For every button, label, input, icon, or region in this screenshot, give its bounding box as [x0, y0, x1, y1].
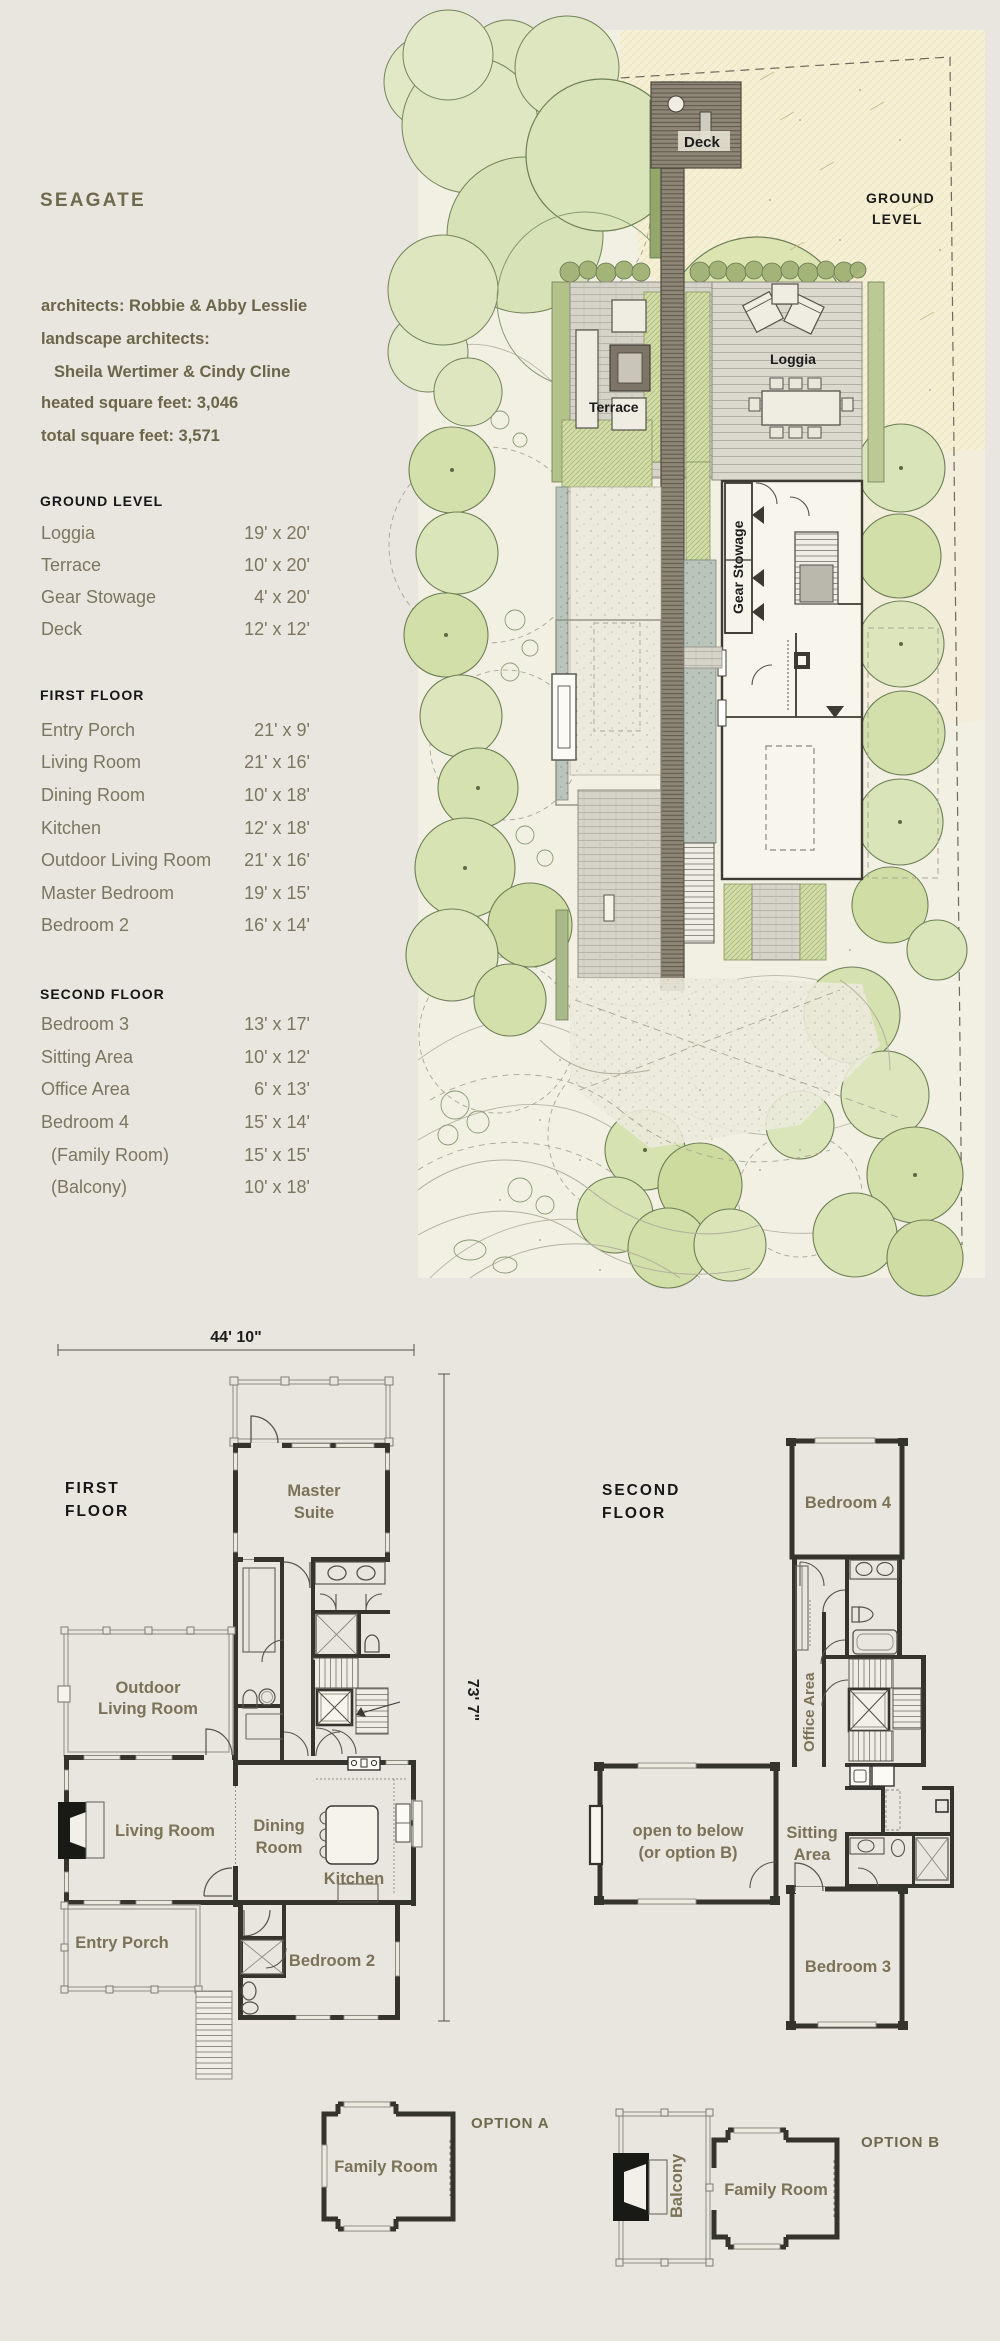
svg-text:Terrace: Terrace	[41, 555, 101, 575]
svg-text:Family Room: Family Room	[334, 2158, 438, 2176]
svg-text:Room: Room	[256, 1839, 303, 1857]
svg-text:GROUND: GROUND	[866, 190, 935, 206]
svg-text:Entry Porch: Entry Porch	[75, 1934, 169, 1952]
svg-text:6' x 13': 6' x 13'	[254, 1079, 310, 1099]
svg-text:Gear Stowage: Gear Stowage	[41, 587, 156, 607]
svg-text:Family Room: Family Room	[724, 2181, 828, 2199]
svg-text:Deck: Deck	[684, 134, 721, 151]
svg-text:Gear Stowage: Gear Stowage	[730, 520, 746, 614]
svg-text:21' x 16': 21' x 16'	[244, 752, 310, 772]
svg-text:architects: Robbie & Abby Less: architects: Robbie & Abby Lesslie	[41, 297, 307, 315]
svg-text:Loggia: Loggia	[770, 351, 816, 367]
svg-text:Entry Porch: Entry Porch	[41, 720, 135, 740]
svg-text:open to below: open to below	[633, 1822, 744, 1840]
svg-text:10' x 12': 10' x 12'	[244, 1047, 310, 1067]
svg-text:16' x 14': 16' x 14'	[244, 915, 310, 935]
svg-text:Sheila Wertimer & Cindy Cline: Sheila Wertimer & Cindy Cline	[54, 363, 290, 381]
svg-text:Sitting Area: Sitting Area	[41, 1047, 134, 1067]
svg-text:Suite: Suite	[294, 1504, 334, 1522]
svg-text:10' x 18': 10' x 18'	[244, 1177, 310, 1197]
svg-text:Bedroom 2: Bedroom 2	[41, 915, 129, 935]
svg-text:FIRST FLOOR: FIRST FLOOR	[40, 687, 144, 703]
svg-text:19' x 20': 19' x 20'	[244, 523, 310, 543]
svg-text:Loggia: Loggia	[41, 523, 96, 543]
svg-text:Bedroom 4: Bedroom 4	[41, 1112, 129, 1132]
svg-text:SECOND: SECOND	[602, 1482, 680, 1499]
svg-text:Dining: Dining	[253, 1817, 304, 1835]
svg-text:Bedroom 3: Bedroom 3	[41, 1014, 129, 1034]
svg-text:(Family Room): (Family Room)	[51, 1145, 169, 1165]
svg-text:21' x 9': 21' x 9'	[254, 720, 310, 740]
svg-text:Master: Master	[287, 1482, 341, 1500]
svg-text:Area: Area	[794, 1846, 832, 1864]
svg-text:LEVEL: LEVEL	[872, 211, 923, 227]
svg-text:Kitchen: Kitchen	[41, 818, 101, 838]
svg-text:4' x 20': 4' x 20'	[254, 587, 310, 607]
svg-text:Office Area: Office Area	[41, 1079, 131, 1099]
svg-text:FLOOR: FLOOR	[602, 1505, 666, 1522]
svg-text:Balcony: Balcony	[668, 2153, 686, 2218]
svg-text:15' x 14': 15' x 14'	[244, 1112, 310, 1132]
svg-text:OPTION A: OPTION A	[471, 2115, 549, 2132]
svg-text:Office Area: Office Area	[801, 1672, 818, 1752]
svg-text:FIRST: FIRST	[65, 1480, 120, 1497]
svg-text:19' x 15': 19' x 15'	[244, 883, 310, 903]
svg-text:Terrace: Terrace	[589, 399, 639, 415]
svg-text:Bedroom 4: Bedroom 4	[805, 1494, 892, 1512]
svg-text:Outdoor Living Room: Outdoor Living Room	[41, 850, 211, 870]
svg-text:10' x 20': 10' x 20'	[244, 555, 310, 575]
svg-text:FLOOR: FLOOR	[65, 1503, 129, 1520]
svg-text:(or option B): (or option B)	[639, 1844, 738, 1862]
svg-text:10' x 18': 10' x 18'	[244, 785, 310, 805]
svg-text:Bedroom 2: Bedroom 2	[289, 1952, 375, 1970]
svg-text:Living Room: Living Room	[115, 1822, 215, 1840]
svg-text:44' 10": 44' 10"	[210, 1329, 261, 1346]
svg-text:12' x 12': 12' x 12'	[244, 619, 310, 639]
svg-text:Dining Room: Dining Room	[41, 785, 145, 805]
svg-text:73' 7": 73' 7"	[464, 1679, 481, 1722]
svg-text:Kitchen: Kitchen	[324, 1870, 385, 1888]
svg-text:12' x 18': 12' x 18'	[244, 818, 310, 838]
svg-text:heated square feet: 3,046: heated square feet: 3,046	[41, 394, 238, 412]
svg-text:Outdoor: Outdoor	[115, 1679, 181, 1697]
svg-text:SEAGATE: SEAGATE	[40, 190, 146, 211]
svg-text:Living Room: Living Room	[98, 1700, 198, 1718]
svg-text:landscape architects:: landscape architects:	[41, 330, 210, 348]
svg-text:13' x 17': 13' x 17'	[244, 1014, 310, 1034]
svg-text:total square feet: 3,571: total square feet: 3,571	[41, 427, 220, 445]
svg-text:Master Bedroom: Master Bedroom	[41, 883, 174, 903]
svg-text:GROUND LEVEL: GROUND LEVEL	[40, 493, 163, 509]
svg-text:Living Room: Living Room	[41, 752, 141, 772]
svg-text:Bedroom 3: Bedroom 3	[805, 1958, 891, 1976]
svg-text:Deck: Deck	[41, 619, 83, 639]
svg-text:21' x 16': 21' x 16'	[244, 850, 310, 870]
svg-text:15' x 15': 15' x 15'	[244, 1145, 310, 1165]
svg-text:OPTION B: OPTION B	[861, 2134, 940, 2151]
svg-text:SECOND FLOOR: SECOND FLOOR	[40, 986, 165, 1002]
svg-text:Sitting: Sitting	[786, 1824, 837, 1842]
svg-text:(Balcony): (Balcony)	[51, 1177, 127, 1197]
